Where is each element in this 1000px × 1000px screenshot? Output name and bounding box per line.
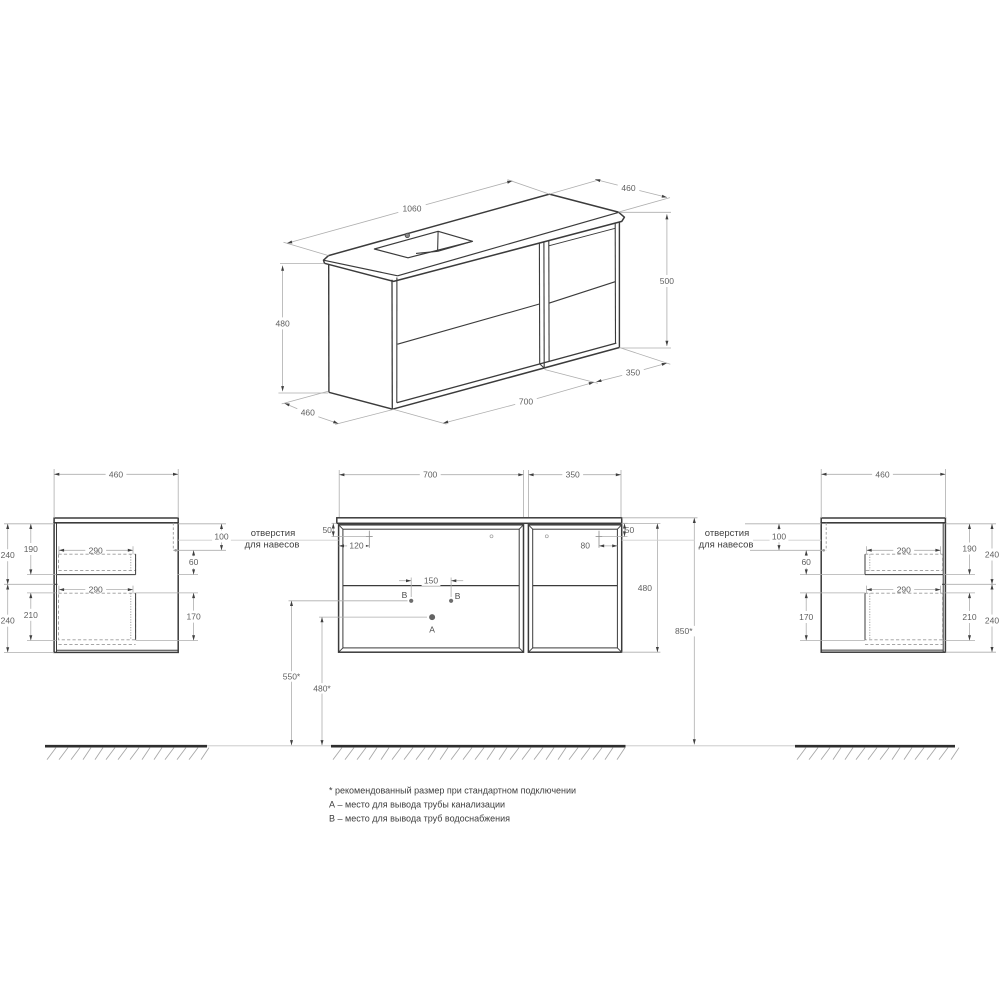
svg-text:210: 210 <box>24 610 38 620</box>
svg-text:290: 290 <box>897 585 911 595</box>
svg-text:350: 350 <box>566 470 580 480</box>
svg-text:100: 100 <box>214 531 228 541</box>
svg-text:480*: 480* <box>313 683 331 693</box>
svg-text:700: 700 <box>423 470 437 480</box>
svg-text:850*: 850* <box>675 626 693 636</box>
svg-text:80: 80 <box>581 541 591 551</box>
svg-text:460: 460 <box>875 469 889 479</box>
svg-text:150: 150 <box>424 576 438 586</box>
svg-text:290: 290 <box>89 585 103 595</box>
svg-text:190: 190 <box>24 544 38 554</box>
svg-text:B: B <box>455 591 461 601</box>
svg-text:120: 120 <box>349 541 363 551</box>
svg-text:50: 50 <box>322 525 332 535</box>
svg-text:для навесов: для навесов <box>699 540 754 551</box>
svg-text:240: 240 <box>985 616 999 626</box>
svg-text:100: 100 <box>772 531 786 541</box>
svg-text:В – место для вывода труб водо: В – место для вывода труб водоснабжения <box>329 814 510 824</box>
svg-text:А – место для вывода трубы кан: А – место для вывода трубы канализации <box>329 800 505 810</box>
svg-text:550*: 550* <box>283 672 301 682</box>
svg-text:170: 170 <box>187 612 201 622</box>
svg-text:170: 170 <box>799 612 813 622</box>
svg-text:480: 480 <box>638 583 652 593</box>
svg-text:1060: 1060 <box>403 204 422 214</box>
svg-text:190: 190 <box>962 544 976 554</box>
svg-text:290: 290 <box>89 545 103 555</box>
svg-text:350: 350 <box>626 368 640 378</box>
svg-text:460: 460 <box>301 408 315 418</box>
svg-text:A: A <box>429 624 435 634</box>
svg-text:для навесов: для навесов <box>245 540 300 551</box>
svg-text:* рекомендованный размер при с: * рекомендованный размер при стандартном… <box>329 786 576 796</box>
svg-text:отверстия: отверстия <box>251 528 296 539</box>
svg-text:480: 480 <box>276 318 290 328</box>
svg-text:60: 60 <box>801 557 811 567</box>
svg-text:210: 210 <box>962 612 976 622</box>
svg-text:290: 290 <box>897 545 911 555</box>
svg-text:50: 50 <box>625 525 635 535</box>
svg-text:460: 460 <box>621 183 635 193</box>
svg-text:500: 500 <box>660 276 674 286</box>
svg-text:60: 60 <box>189 557 199 567</box>
svg-text:отверстия: отверстия <box>705 528 750 539</box>
svg-text:240: 240 <box>985 550 999 560</box>
svg-text:700: 700 <box>519 397 533 407</box>
svg-text:240: 240 <box>1 550 15 560</box>
svg-text:460: 460 <box>109 469 123 479</box>
svg-text:240: 240 <box>1 616 15 626</box>
svg-text:B: B <box>402 590 408 600</box>
